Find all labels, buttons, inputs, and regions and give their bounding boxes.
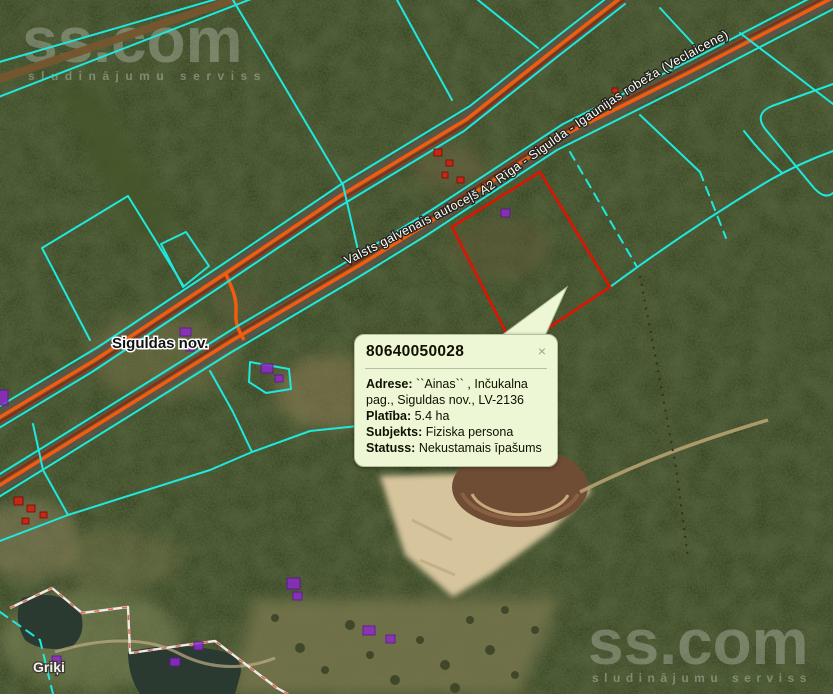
place-label-griki: Griķi	[33, 659, 65, 675]
field-adrese: Adrese: ``Ainas`` , Inčukalna pag., Sigu…	[366, 377, 528, 407]
close-icon[interactable]: ×	[538, 344, 546, 358]
popup-tail	[492, 284, 574, 340]
map-viewport[interactable]: ss.com sludinājumu serviss ss.com sludin…	[0, 0, 833, 694]
popup-separator	[365, 368, 547, 369]
field-platiba: Platība: 5.4 ha	[366, 409, 449, 423]
municipality-label: Siguldas nov.	[112, 335, 208, 352]
watermark-brand: ss.com	[588, 606, 809, 678]
popup-title-parcel-id: 80640050028	[366, 343, 464, 361]
field-statuss: Statuss: Nekustamais īpašums	[366, 441, 542, 455]
parcel-info-popup: 80640050028 × Adrese: ``Ainas`` , Inčuka…	[354, 334, 558, 467]
watermark-bottom-right: ss.com sludinājumu serviss	[588, 606, 812, 685]
watermark-top-left: ss.com sludinājumu serviss	[22, 4, 267, 83]
field-subjekts: Subjekts: Fiziska persona	[366, 425, 513, 439]
watermark-tagline: sludinājumu serviss	[592, 671, 812, 685]
